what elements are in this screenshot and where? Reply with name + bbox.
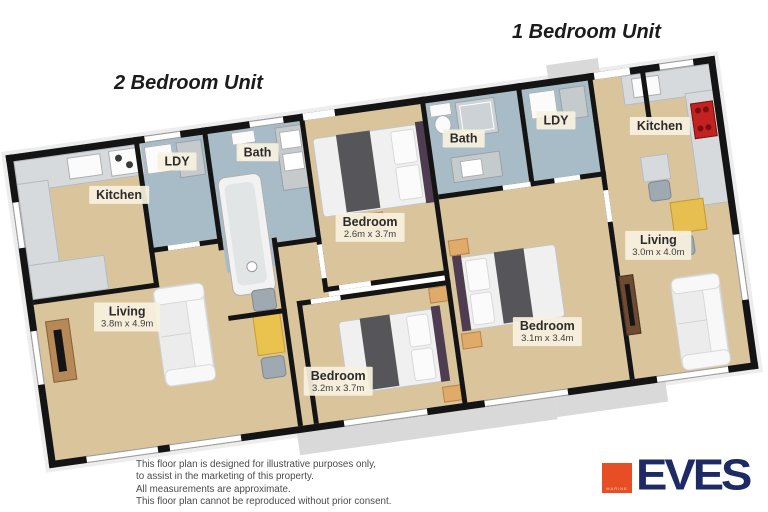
- room-label-living2: Living 3.8m x 4.9m: [94, 303, 160, 332]
- logo-subtext: MARINE: [603, 486, 631, 491]
- unit2-title: 2 Bedroom Unit: [114, 72, 263, 95]
- room-name: Kitchen: [637, 119, 683, 133]
- chair: [260, 355, 287, 380]
- nightstand: [461, 331, 483, 350]
- room-label-bath2: Bath: [237, 143, 279, 161]
- room-label-ldy1: LDY: [536, 111, 575, 129]
- room-name: Kitchen: [96, 188, 142, 202]
- room-dims: 3.8m x 4.9m: [101, 319, 153, 330]
- unit1-title: 1 Bedroom Unit: [512, 21, 661, 44]
- room-name: Bath: [244, 145, 272, 159]
- pillow: [465, 257, 491, 292]
- room-label-kitchen2: Kitchen: [89, 186, 149, 204]
- room-name: Bedroom: [343, 215, 398, 229]
- floor-plan: Kitchen LDY Bath Bedroom 2.6m x 3.7m Liv…: [5, 56, 758, 469]
- nightstand: [448, 238, 470, 257]
- room-name: Living: [101, 305, 153, 319]
- logo-wordmark: EVES: [636, 449, 749, 500]
- room-name: Bedroom: [311, 369, 366, 383]
- chair: [647, 179, 672, 202]
- room-dims: 3.2m x 3.7m: [311, 383, 366, 394]
- disclaimer: This floor plan is designed for illustra…: [136, 459, 391, 508]
- room-label-bedroom1: Bedroom 2.6m x 3.7m: [336, 213, 405, 242]
- room-name: LDY: [165, 155, 190, 169]
- room-name: LDY: [543, 113, 568, 127]
- kitchen-island: [640, 153, 671, 183]
- room-name: Bath: [450, 131, 478, 145]
- room-label-kitchen1: Kitchen: [630, 117, 690, 135]
- room-dims: 3.0m x 4.0m: [632, 247, 684, 258]
- pillow: [406, 313, 432, 348]
- room-label-bedroom2: Bedroom 3.2m x 3.7m: [304, 367, 373, 396]
- pillow: [469, 291, 495, 326]
- dining-table: [670, 198, 708, 234]
- disclaimer-line: All measurements are approximate.: [136, 484, 391, 496]
- room-name: Living: [632, 233, 684, 247]
- disclaimer-line: This floor plan is designed for illustra…: [136, 459, 391, 471]
- pillow: [390, 128, 418, 165]
- pillow: [395, 164, 423, 201]
- kitchen-sink: [66, 153, 103, 180]
- room-dims: 2.6m x 3.7m: [343, 229, 398, 240]
- room-name: Bedroom: [520, 319, 575, 333]
- pillow: [411, 347, 437, 382]
- room-label-living1: Living 3.0m x 4.0m: [625, 231, 691, 260]
- disclaimer-line: This floor plan cannot be reproduced wit…: [136, 496, 391, 508]
- room-label-ldy2: LDY: [158, 153, 197, 171]
- disclaimer-line: to assist in the marketing of this prope…: [136, 471, 391, 483]
- room-label-bedroom3: Bedroom 3.1m x 3.4m: [513, 317, 582, 346]
- room-dims: 3.1m x 3.4m: [520, 333, 575, 344]
- room-label-bath1: Bath: [443, 129, 485, 147]
